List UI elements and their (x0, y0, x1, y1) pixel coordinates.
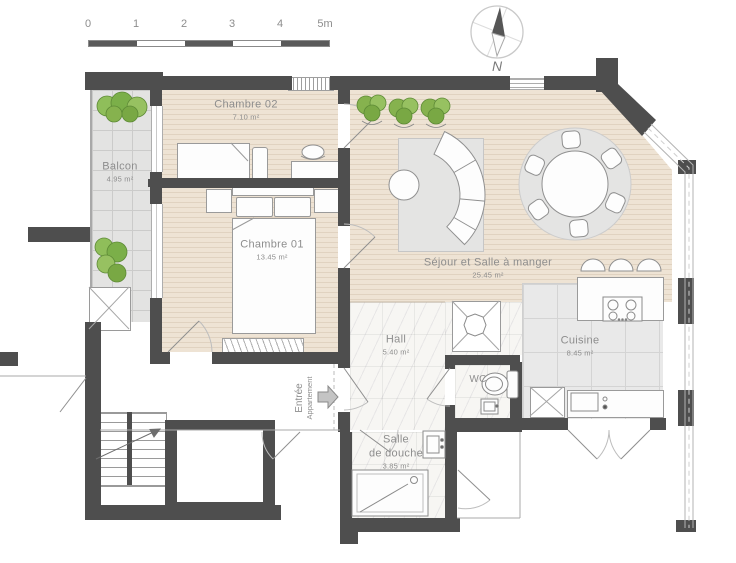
bed-fold-lines (231, 143, 254, 230)
entrance-arrow-icon (318, 386, 338, 408)
bar-stools (581, 259, 661, 271)
wc-sink (481, 399, 498, 414)
stair-direction-arrow (96, 429, 160, 459)
shaft-basin (464, 314, 486, 336)
plan-overlay (0, 0, 736, 563)
curved-sofa (434, 132, 485, 245)
room-label-sejour: Séjour et Salle à manger 25.45 m² (424, 256, 552, 279)
floor-plan: 0 1 2 3 4 5m N (0, 0, 736, 563)
landing-door-leaf (60, 378, 86, 412)
desk-chair (301, 145, 325, 160)
room-label-douche: Salle de douche 3.85 m² (369, 434, 423, 471)
side-table (389, 170, 419, 200)
balcony-plant-icon (95, 92, 147, 282)
balcony-arrow-icon (148, 172, 166, 194)
shower-tray (352, 470, 428, 516)
cooktop (603, 297, 642, 321)
room-label-chambre01: Chambre 01 13.45 m² (240, 238, 304, 261)
toilet (482, 371, 518, 398)
room-label-cuisine: Cuisine 8.45 m² (561, 334, 600, 357)
kitchen-sink (571, 393, 607, 411)
room-label-chambre02: Chambre 02 7.10 m² (214, 98, 278, 121)
room-label-balcon: Balcon 4.95 m² (102, 160, 137, 183)
plant-icon (357, 95, 450, 128)
wall-diagonal (598, 84, 656, 136)
room-label-hall: Hall 5.40 m² (383, 333, 410, 356)
dining-table (542, 151, 608, 217)
bathroom-vanity (423, 431, 445, 458)
entrance-label: Entrée Appartement (294, 362, 314, 434)
facade-windows (644, 124, 693, 528)
room-label-wc: WC (469, 374, 486, 387)
bottom-room-outline (457, 432, 520, 518)
